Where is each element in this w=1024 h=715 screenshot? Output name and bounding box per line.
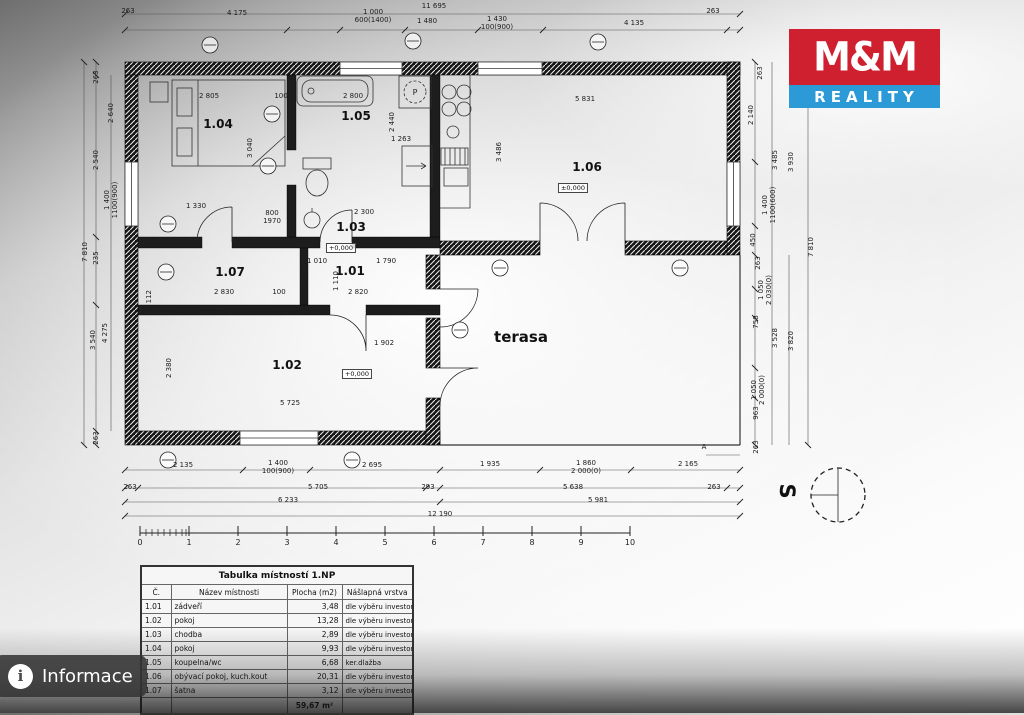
washbasin [304, 208, 320, 228]
dim-label: 1 400 100(900) [262, 460, 294, 476]
scale-number: 4 [333, 538, 338, 547]
scale-number: 10 [625, 538, 635, 547]
dim-label: 3 485 [772, 150, 780, 170]
dim-label: 2 805 [199, 93, 219, 101]
table-total: 59,67 m² [287, 698, 342, 715]
room-label-1-05: 1.05 [341, 109, 371, 123]
dim-label: 2 540 [93, 150, 101, 170]
table-row: 1.07šatna 3,12dle výběru investora [141, 684, 413, 698]
dim-label: 100 [274, 93, 287, 101]
dim-label: 4 175 [227, 10, 247, 18]
scale-number: 3 [284, 538, 289, 547]
dim-label: 7 810 [82, 242, 90, 262]
dim-label: 12 190 [428, 511, 453, 519]
dim-label: 800 1970 [263, 210, 281, 226]
room-label-terasa: terasa [494, 328, 548, 346]
logo-reality-text: REALITY [810, 88, 919, 106]
dim-label: 11 695 [422, 3, 447, 11]
dim-label: 2 695 [362, 462, 382, 470]
scale-number: 8 [529, 538, 534, 547]
dim-label: 5 831 [575, 96, 595, 104]
dim-label: 2 165 [678, 461, 698, 469]
toilet [303, 158, 331, 196]
dim-label: 1 112 [146, 290, 154, 310]
dim-label: 100 [272, 289, 285, 297]
dim-label: 6 233 [278, 497, 298, 505]
terrace-edges [440, 255, 740, 445]
dim-label: 263 [93, 431, 101, 444]
room-label-1-07: 1.07 [215, 265, 245, 279]
dim-label: 1 400 1100(600) [762, 187, 778, 224]
dim-label: 263 [706, 8, 719, 16]
dim-label: 2 300 [354, 209, 374, 217]
scale-bar [140, 526, 630, 536]
scale-number: 5 [382, 538, 387, 547]
logo-red-box: M&M [789, 29, 940, 85]
dim-label: 5 638 [563, 484, 583, 492]
room-label-1-06: 1.06 [572, 160, 602, 174]
dim-label: 3 040 [247, 138, 255, 158]
dim-label: 263 [753, 440, 761, 453]
dim-label: 1 480 [417, 18, 437, 26]
dim-label: 450 [750, 233, 758, 246]
dim-label: 1 860 2 000(0) [571, 460, 601, 476]
scale-number: 9 [578, 538, 583, 547]
table-row: 1.03chodba 2,89dle výběru investora [141, 628, 413, 642]
dim-label: 263 [757, 66, 765, 79]
dim-label: 1 430 100(900) [481, 16, 513, 32]
info-label: Informace [42, 666, 133, 687]
dim-label: 2 380 [166, 358, 174, 378]
table-row: 1.01zádveří 3,48dle výběru investora [141, 600, 413, 614]
table-header: Nášlapná vrstva [342, 585, 413, 600]
dim-label: 1 110 [333, 271, 341, 291]
dim-label: 7 810 [808, 237, 816, 257]
dim-label: 263 [121, 8, 134, 16]
dim-label: 1 935 [480, 461, 500, 469]
table-row: 1.06obývací pokoj, kuch.kout 20,31dle vý… [141, 670, 413, 684]
scale-number: 6 [431, 538, 436, 547]
table-title: Tabulka místností 1.NP [141, 566, 413, 585]
dim-label: 4 275 [102, 323, 110, 343]
table-row: 1.05koupelna/wc 6,68ker.dlažba [141, 656, 413, 670]
dim-label: 2 640 [108, 103, 116, 123]
dim-label: 2 820 [348, 289, 368, 297]
dim-label: 2 830 [214, 289, 234, 297]
scale-number: 2 [235, 538, 240, 547]
dim-label: 263 [707, 484, 720, 492]
room-label-1-02: 1.02 [272, 358, 302, 372]
elevation-mark: +0,000 [342, 369, 372, 379]
dim-label: 1 790 [376, 258, 396, 266]
dim-label: 1 400 1100(900) [104, 182, 120, 219]
table-header: Plocha (m2) [287, 585, 342, 600]
mm-reality-logo: M&M REALITY [789, 29, 940, 108]
shower [402, 146, 432, 186]
dim-label: 3 540 [90, 330, 98, 350]
dim-label: 263 [93, 70, 101, 83]
dim-label: 3 820 [788, 331, 796, 351]
dim-label: 293 [421, 484, 434, 492]
scale-number: 1 [186, 538, 191, 547]
dim-label: 235 [93, 251, 101, 264]
scale-number: 0 [137, 538, 142, 547]
elevation-mark: ±0,000 [558, 183, 588, 193]
dim-label: 1 050 2 000(0) [751, 375, 767, 405]
north-letter: S [775, 483, 799, 498]
table-header: Č. [141, 585, 171, 600]
scale-number: 7 [480, 538, 485, 547]
dim-label: 963 [753, 406, 761, 419]
dim-label: 2 800 [343, 93, 363, 101]
dim-label: 5 705 [308, 484, 328, 492]
north-indicator [811, 468, 865, 522]
info-bar[interactable]: i Informace [0, 655, 147, 697]
dim-label: 1 010 [307, 258, 327, 266]
section-marker-a: A [702, 443, 707, 451]
dim-label: 1 050 2 030(0) [758, 275, 774, 305]
dim-label: 2 440 [389, 112, 397, 132]
dim-label: 1 330 [186, 203, 206, 211]
dim-label: 3 486 [496, 142, 504, 162]
dim-label: 263 [123, 484, 136, 492]
table-row: 1.04pokoj 9,93dle výběru investora [141, 642, 413, 656]
room-label-1-03: 1.03 [336, 220, 366, 234]
table-total-row: 59,67 m² [141, 698, 413, 715]
dim-label: 5 725 [280, 400, 300, 408]
table-row: 1.02pokoj 13,28dle výběru investora [141, 614, 413, 628]
elevation-mark: +0,000 [326, 243, 356, 253]
logo-mm-text: M&M [813, 34, 916, 80]
room-table: Tabulka místností 1.NP Č. Název místnost… [140, 565, 414, 715]
table-header: Název místnosti [171, 585, 287, 600]
dim-label: 3 528 [772, 328, 780, 348]
dim-label: 263 [755, 256, 763, 269]
dim-label: 1 000 600(1400) [355, 9, 392, 25]
room-label-1-04: 1.04 [203, 117, 233, 131]
dim-label: 2 140 [748, 105, 756, 125]
info-icon: i [8, 664, 33, 689]
dim-label: 758 [753, 315, 761, 328]
dim-label: 4 135 [624, 20, 644, 28]
washer-label: P [413, 88, 418, 97]
grid-bubbles [158, 33, 688, 468]
bathtub [297, 76, 373, 106]
doors [197, 203, 625, 406]
washing-machine: P [399, 76, 431, 108]
logo-blue-bar: REALITY [789, 85, 940, 108]
dim-label: 5 981 [588, 497, 608, 505]
dim-label: 3 930 [788, 152, 796, 172]
kitchen [440, 75, 471, 208]
dim-label: 1 902 [374, 340, 394, 348]
dim-label: 2 135 [173, 462, 193, 470]
dim-label: 1 263 [391, 136, 411, 144]
